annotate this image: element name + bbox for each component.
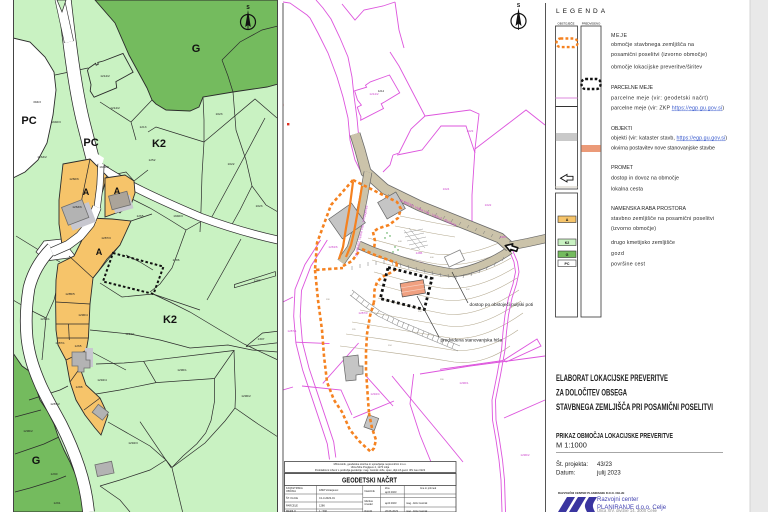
svg-text:OBJEKTI: OBJEKTI	[611, 126, 632, 132]
svg-text:1022: 1022	[228, 162, 235, 166]
svg-text:april 2023: april 2023	[385, 490, 397, 494]
svg-text:gozd: gozd	[611, 251, 624, 257]
svg-text:M 1:1000: M 1:1000	[556, 441, 587, 450]
svg-text:G: G	[192, 43, 201, 55]
svg-text:STAVBNEGA ZEMLJIŠČA PRI POSAMI: STAVBNEGA ZEMLJIŠČA PRI POSAMIČNI POSELI…	[556, 401, 713, 412]
svg-text:OBSTOJEČE: OBSTOJEČE	[558, 21, 575, 26]
svg-text:površine cest: površine cest	[611, 262, 646, 268]
svg-text:1252: 1252	[149, 158, 156, 162]
svg-text:1213: 1213	[140, 125, 147, 129]
svg-text:1940/3: 1940/3	[173, 214, 183, 218]
svg-text:K2: K2	[565, 241, 570, 245]
svg-text:parcelne meje (vir: ZKP https:: parcelne meje (vir: ZKP https://egp.gu.g…	[611, 106, 724, 112]
svg-text:LEGENDA: LEGENDA	[556, 8, 608, 15]
svg-text:parcelne meje (vir: geodetski: parcelne meje (vir: geodetski načrt)	[611, 96, 708, 102]
svg-text:1265: 1265	[137, 214, 144, 218]
svg-text:RAZVOJČNI CENTER PLANIRANJE D.: RAZVOJČNI CENTER PLANIRANJE D.O.O. CELJE	[558, 490, 624, 495]
svg-text:1307: 1307	[500, 235, 507, 239]
svg-text:1214/2: 1214/2	[100, 74, 110, 78]
svg-text:PC: PC	[83, 137, 98, 149]
svg-text:1214: 1214	[378, 89, 385, 93]
svg-text:1023: 1023	[467, 129, 474, 133]
svg-text:1214/2: 1214/2	[110, 106, 120, 110]
svg-text:1287/3: 1287/3	[358, 311, 368, 315]
svg-text:1265: 1265	[75, 344, 82, 348]
svg-text:april 2023: april 2023	[385, 501, 397, 505]
svg-text:Razvojni center: Razvojni center	[597, 497, 638, 503]
svg-text:Ulica XIV. divizije 14, 3000 C: Ulica XIV. divizije 14, 3000 Celje	[597, 508, 658, 512]
svg-text:PC: PC	[21, 115, 36, 127]
svg-text:Št. projekta:: Št. projekta:	[556, 461, 588, 468]
svg-text:območje stavbnega zemljišča na: območje stavbnega zemljišča na	[611, 42, 694, 48]
svg-text:1296/4: 1296/4	[78, 313, 88, 317]
svg-text:PROMET: PROMET	[611, 165, 634, 171]
svg-text:G: G	[32, 455, 41, 467]
svg-text:1287/1: 1287/1	[287, 329, 297, 333]
svg-text:dostop in dovoz na območje: dostop in dovoz na območje	[611, 176, 679, 182]
svg-text:K2: K2	[163, 314, 177, 326]
svg-text:K2: K2	[152, 138, 166, 150]
svg-text:objekti (vir: kataster stavb,: objekti (vir: kataster stavb, https://eg…	[611, 136, 727, 142]
svg-text:1286: 1286	[416, 251, 423, 255]
svg-text:1024: 1024	[443, 187, 450, 191]
svg-text:G: G	[566, 253, 569, 257]
svg-text:1286: 1286	[173, 258, 180, 262]
svg-text:1940/3: 1940/3	[51, 120, 61, 124]
svg-text:1022: 1022	[485, 203, 492, 207]
svg-text:Ime in priimek: Ime in priimek	[420, 486, 437, 490]
svg-text:A: A	[96, 247, 103, 257]
svg-text:1263/1: 1263/1	[40, 317, 50, 321]
svg-text:PARCELE: PARCELE	[286, 504, 298, 508]
svg-text:mag. Jože Cestnik: mag. Jože Cestnik	[406, 501, 428, 505]
svg-text:1260/6: 1260/6	[69, 177, 79, 181]
svg-text:CJ-3-2023-01: CJ-3-2023-01	[319, 496, 335, 500]
svg-text:NAMENSKA RABA PROSTORA: NAMENSKA RABA PROSTORA	[611, 206, 686, 212]
svg-text:okvirna postavitev nove stanov: okvirna postavitev nove stanovanjske sta…	[611, 146, 715, 152]
svg-text:1296/2: 1296/2	[241, 394, 251, 398]
svg-text:PARCELNE MEJE: PARCELNE MEJE	[611, 85, 653, 91]
svg-text:drugo kmetijsko zemljišče: drugo kmetijsko zemljišče	[611, 240, 675, 246]
svg-text:ELABORAT LOKACIJSKE PREVERITVE: ELABORAT LOKACIJSKE PREVERITVE	[556, 373, 668, 383]
svg-text:MEJE: MEJE	[611, 33, 627, 39]
svg-text:1296/2: 1296/2	[520, 453, 530, 457]
svg-text:ZA DOLOČITEV OBSEGA: ZA DOLOČITEV OBSEGA	[556, 387, 627, 398]
svg-text:1848 Vintarjevec: 1848 Vintarjevec	[319, 488, 339, 492]
svg-text:1287: 1287	[254, 279, 261, 283]
svg-text:1294/1: 1294/1	[125, 332, 135, 336]
svg-text:1263/2: 1263/2	[37, 155, 47, 159]
svg-text:GEODETSKI NAČRT: GEODETSKI NAČRT	[342, 476, 397, 485]
svg-text:1294/4: 1294/4	[370, 392, 380, 396]
svg-text:Zna: Zna	[385, 486, 390, 490]
svg-text:1285/5: 1285/5	[65, 292, 75, 296]
svg-text:dostop po obstoječi poljski po: dostop po obstoječi poljski poti	[470, 302, 534, 307]
svg-text:1307: 1307	[258, 337, 265, 341]
svg-text:lokalna cesta: lokalna cesta	[611, 187, 643, 193]
svg-text:394/3: 394/3	[33, 100, 41, 104]
svg-text:A: A	[83, 187, 90, 197]
svg-text:Pooblaščeni inženir s področja: Pooblaščeni inženir s področja geodezije…	[315, 468, 426, 472]
svg-text:1023: 1023	[216, 112, 223, 116]
svg-text:1294/4: 1294/4	[97, 378, 107, 382]
svg-text:1290: 1290	[51, 472, 58, 476]
svg-text:Naročnik: Naročnik	[365, 489, 376, 493]
svg-text:stavbno zemljišče na posamični: stavbno zemljišče na posamični poselitvi	[611, 216, 714, 222]
svg-text:1263/6: 1263/6	[328, 245, 338, 249]
svg-text:1291: 1291	[54, 501, 61, 505]
svg-text:PC: PC	[565, 262, 570, 266]
svg-text:1296/1: 1296/1	[459, 381, 469, 385]
svg-text:1296/2: 1296/2	[23, 429, 33, 433]
svg-text:julij 2023: julij 2023	[596, 471, 621, 477]
svg-text:PREDVIDENO: PREDVIDENO	[582, 22, 601, 26]
svg-text:1940/3: 1940/3	[99, 165, 109, 169]
svg-text:Datum:: Datum:	[556, 471, 576, 477]
svg-text:A: A	[566, 218, 569, 222]
svg-text:43/23: 43/23	[597, 462, 613, 468]
svg-text:A: A	[114, 186, 121, 196]
svg-text:izvedel: izvedel	[365, 502, 373, 506]
svg-text:1263/6: 1263/6	[72, 205, 82, 209]
svg-text:1288: 1288	[76, 385, 83, 389]
svg-text:PRIKAZ OBMOČJA LOKACIJSKE PREV: PRIKAZ OBMOČJA LOKACIJSKE PREVERITVE	[556, 431, 673, 440]
svg-text:območje lokacijske preveritve/: območje lokacijske preveritve/širitev	[611, 65, 702, 71]
svg-text:predvidena stanovanjska hiša: predvidena stanovanjska hiša	[441, 338, 503, 343]
svg-text:1294/3: 1294/3	[128, 441, 138, 445]
svg-text:posamični poselitvi (izvorno o: posamični poselitvi (izvorno območje)	[611, 52, 707, 58]
svg-text:1023: 1023	[256, 204, 263, 208]
svg-text:1286: 1286	[319, 504, 325, 508]
svg-text:1287/1: 1287/1	[55, 341, 65, 345]
svg-text:1287/2: 1287/2	[50, 402, 60, 406]
svg-text:1296/1: 1296/1	[177, 368, 187, 372]
svg-text:(izvorno območje): (izvorno območje)	[611, 226, 656, 232]
svg-text:1287/3: 1287/3	[101, 236, 111, 240]
